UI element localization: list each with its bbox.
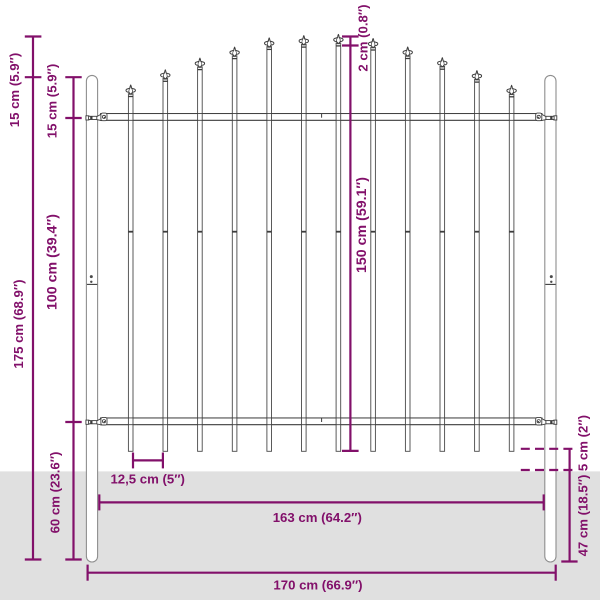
- svg-text:2 cm (0.8″): 2 cm (0.8″): [356, 4, 371, 71]
- svg-text:150 cm (59.1″): 150 cm (59.1″): [354, 177, 370, 273]
- svg-text:163 cm (64.2″): 163 cm (64.2″): [273, 510, 362, 525]
- svg-text:15 cm (5.9″): 15 cm (5.9″): [45, 64, 60, 139]
- svg-text:60 cm (23.6″): 60 cm (23.6″): [47, 452, 62, 534]
- svg-text:15 cm (5.9″): 15 cm (5.9″): [7, 53, 22, 128]
- svg-text:100 cm (39.4″): 100 cm (39.4″): [44, 214, 60, 310]
- svg-text:12,5 cm (5″): 12,5 cm (5″): [110, 471, 185, 486]
- svg-text:5 cm (2″): 5 cm (2″): [576, 415, 591, 471]
- svg-text:175 cm (68.9″): 175 cm (68.9″): [11, 279, 26, 368]
- svg-text:47 cm (18.5″): 47 cm (18.5″): [576, 475, 591, 557]
- svg-text:170 cm (66.9″): 170 cm (66.9″): [273, 578, 362, 593]
